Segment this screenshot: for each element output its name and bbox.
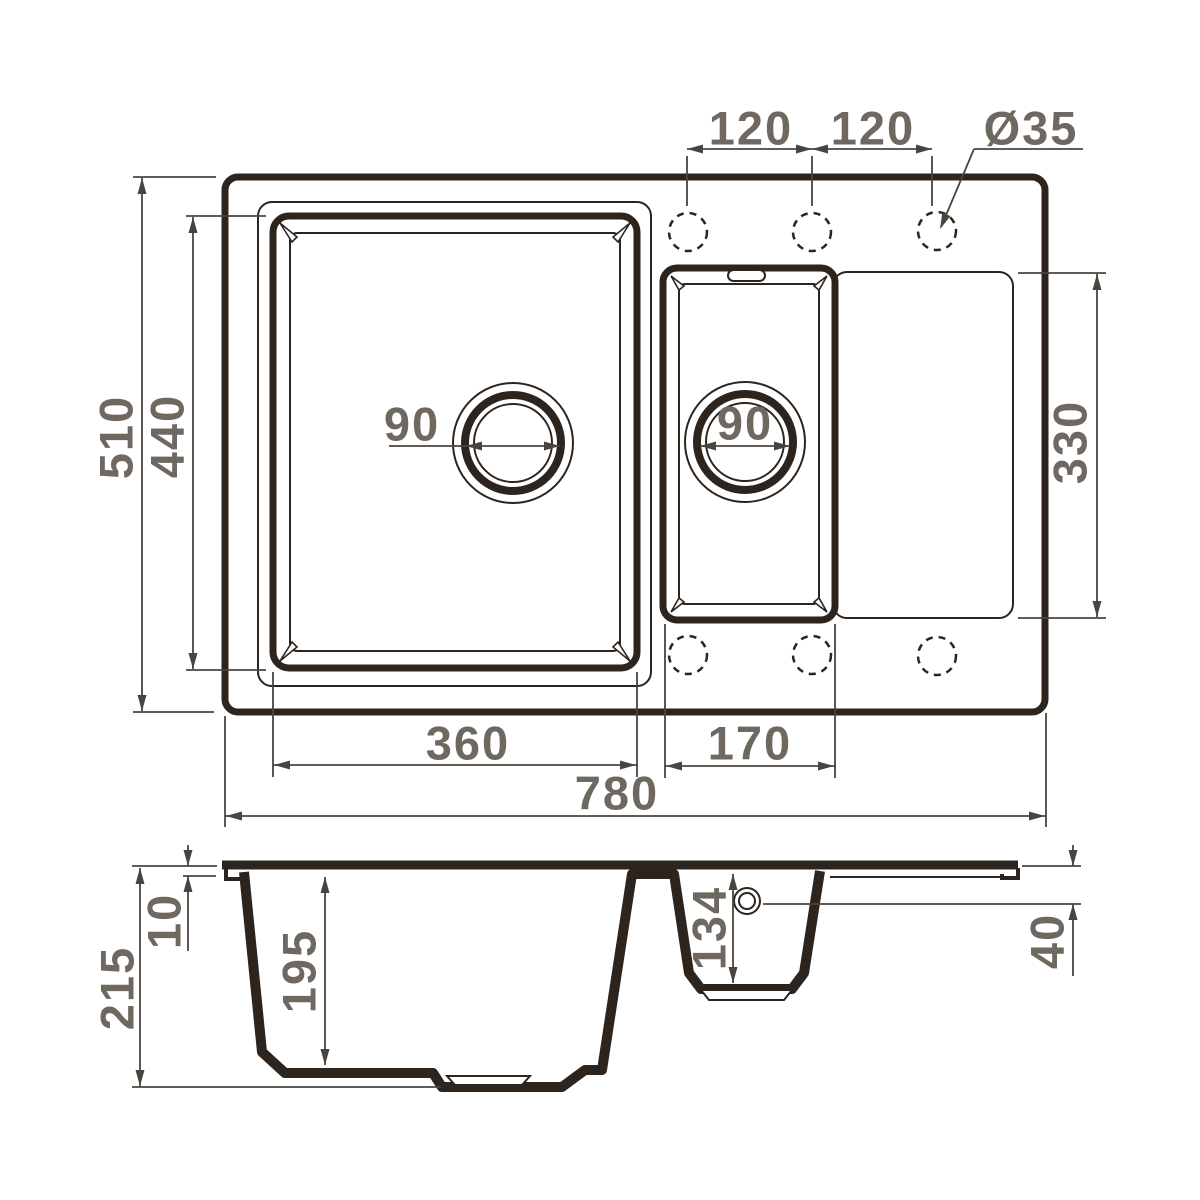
top-view — [225, 177, 1045, 712]
dim-small-bowl-width: 170 — [708, 717, 792, 770]
dim-hole-pitch-left: 120 — [709, 102, 793, 155]
dim-depth-overall: 510 — [90, 395, 143, 479]
dim-main-bowl-depth: 195 — [273, 929, 326, 1013]
dim-hole-pitch-right: 120 — [831, 102, 915, 155]
dim-hole-diameter: Ø35 — [984, 102, 1079, 155]
overflow-notch — [728, 270, 765, 281]
sink-technical-drawing: 120 120 Ø35 510 440 330 90 90 360 170 78… — [0, 0, 1200, 1200]
dim-main-bowl-width: 360 — [426, 717, 510, 770]
dim-small-bowl-depth: 134 — [683, 886, 736, 970]
overflow-hole — [734, 888, 760, 914]
drawing-canvas: 120 120 Ø35 510 440 330 90 90 360 170 78… — [0, 0, 1200, 1200]
dim-drainboard-drop: 40 — [1021, 913, 1074, 969]
dim-width-overall: 780 — [575, 767, 659, 820]
dim-main-drain: 90 — [384, 398, 440, 451]
dim-drainboard-length: 330 — [1044, 400, 1097, 484]
section-view-labels: 215 10 195 134 40 — [91, 886, 1074, 1030]
main-drain-plate — [447, 1076, 530, 1085]
dim-height-overall: 215 — [91, 946, 144, 1030]
dim-rim-thickness: 10 — [138, 893, 191, 949]
dim-bowl-inner-depth: 440 — [141, 394, 194, 478]
dim-small-drain: 90 — [717, 397, 773, 450]
section-view — [222, 865, 1018, 1087]
small-drain-plate — [701, 990, 792, 1000]
